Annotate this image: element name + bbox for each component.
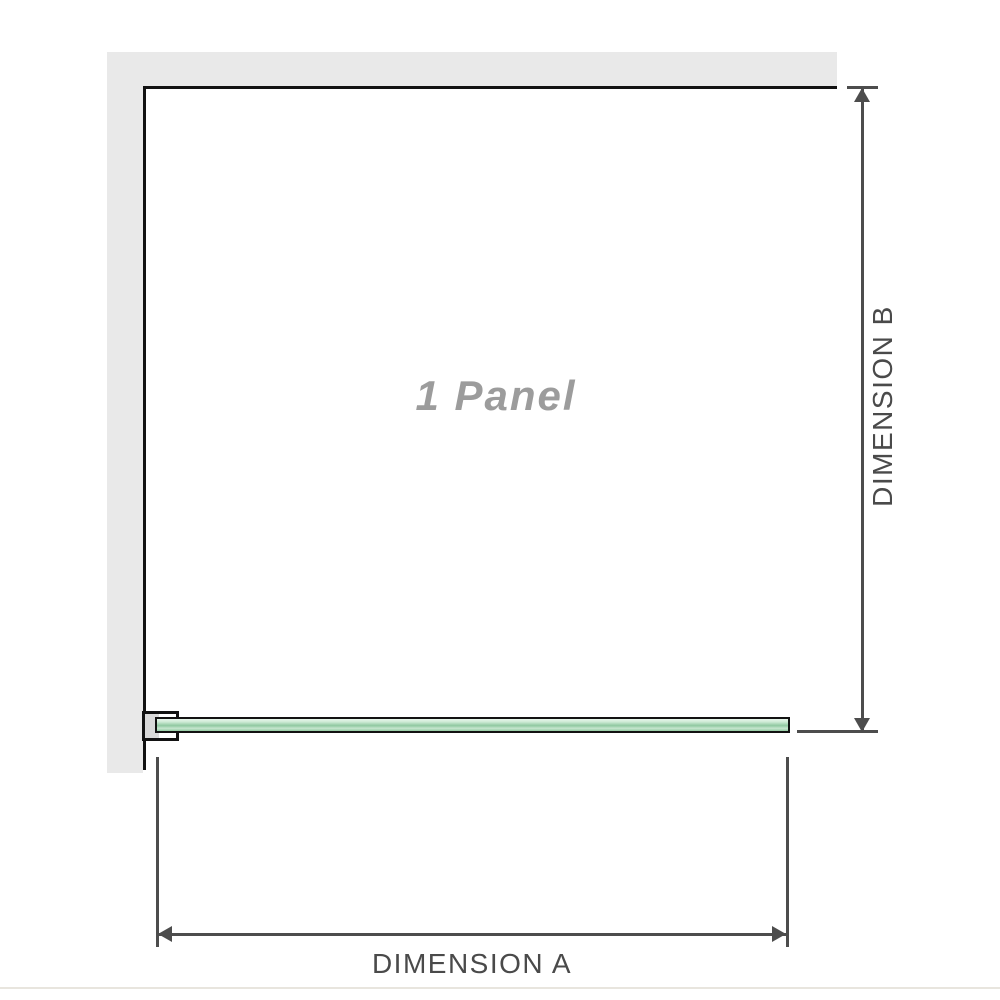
dim-a-line xyxy=(158,933,787,936)
dimension-a-label: DIMENSION A xyxy=(372,948,572,980)
glass-panel xyxy=(155,717,790,733)
dim-a-left-extension-line xyxy=(156,757,159,947)
dim-b-line xyxy=(861,89,864,732)
page-edge-divider xyxy=(0,987,1000,989)
arrow-right-icon xyxy=(772,926,786,942)
wall-left xyxy=(107,52,143,773)
dimension-b-label: DIMENSION B xyxy=(867,305,899,507)
wall-top-inner-edge xyxy=(143,86,837,89)
wall-top xyxy=(107,52,837,86)
arrow-down-icon xyxy=(854,718,870,732)
panel-count-label: 1 Panel xyxy=(246,372,746,420)
arrow-left-icon xyxy=(158,926,172,942)
arrow-up-icon xyxy=(854,88,870,102)
wall-left-inner-edge xyxy=(143,86,146,770)
dim-a-right-extension-line xyxy=(786,757,789,947)
diagram-canvas: 1 Panel DIMENSION B DIMENSION A xyxy=(0,0,1000,1000)
